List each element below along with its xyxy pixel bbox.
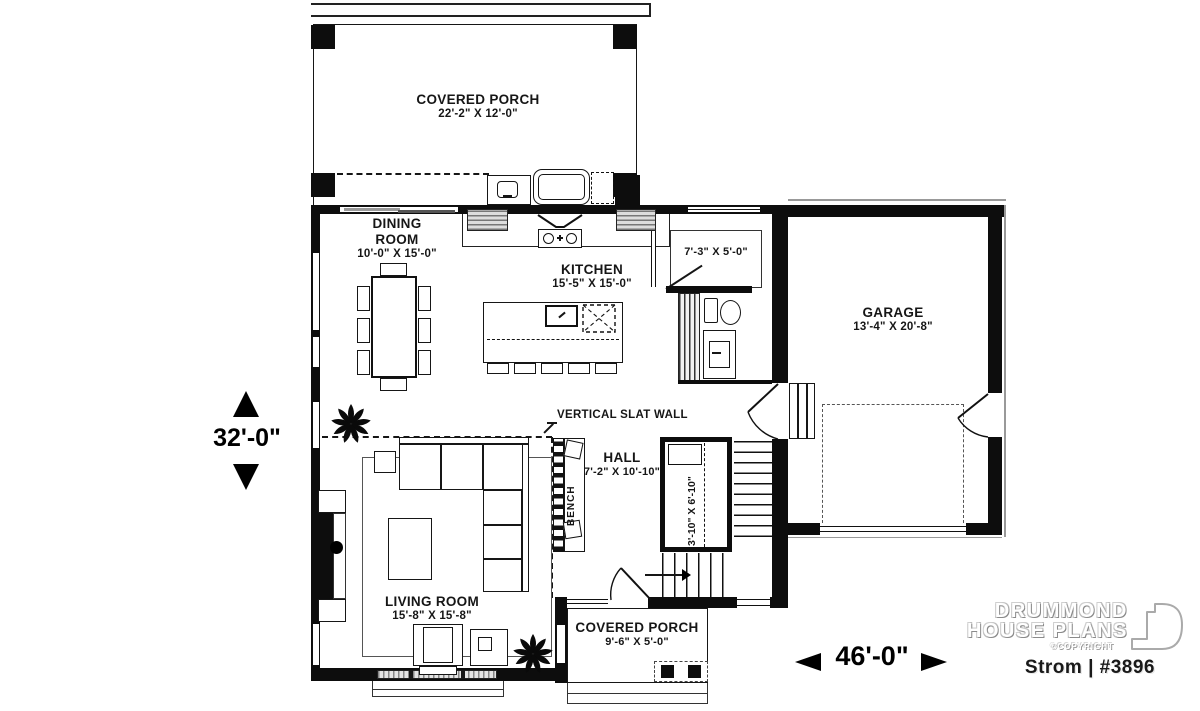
- sofa-back-right: [522, 444, 529, 592]
- garage-roof-edge: [788, 199, 1006, 201]
- garage-top-wall: [788, 205, 1006, 217]
- brand-line1: DRUMMOND: [930, 601, 1128, 621]
- brand-block: DRUMMOND HOUSE PLANS ©COPYRIGHT: [930, 601, 1128, 651]
- room-size: 10'-0" X 15'-0": [357, 248, 436, 262]
- toilet-tank: [704, 298, 718, 323]
- bath-sink: [709, 341, 730, 368]
- porch-post: [613, 25, 637, 49]
- porch-pier: [661, 665, 674, 678]
- dining-chair: [357, 318, 370, 343]
- dimension-height: 32'-0": [213, 424, 281, 453]
- toilet-bowl: [720, 300, 741, 325]
- hall-bottom-wall-corner: [770, 597, 788, 608]
- brand-line2: HOUSE PLANS: [930, 621, 1128, 641]
- left-window: [312, 402, 320, 448]
- kitchen-window-left: [467, 209, 508, 231]
- room-size: 13'-4" X 20'-8": [853, 321, 932, 335]
- room-name: HALL: [584, 450, 660, 466]
- room-name: KITCHEN: [552, 262, 631, 278]
- outdoor-fridge-dashed: [591, 172, 614, 204]
- room-label-garage: GARAGE 13'-4" X 20'-8": [853, 305, 932, 335]
- window-divider: [409, 670, 413, 679]
- room-size: 7'-3" X 5'-0": [684, 246, 748, 259]
- room-label-dining: DINING ROOM 10'-0" X 15'-0": [357, 216, 436, 262]
- outdoor-sink-drain: [503, 195, 512, 197]
- porch-post: [311, 25, 335, 49]
- hall-bottom-window: [737, 599, 770, 606]
- dining-chair: [380, 378, 407, 391]
- porch-front-step-line: [567, 693, 708, 694]
- left-window: [312, 624, 320, 665]
- kitchen-cabinet-edge: [651, 231, 656, 287]
- bench-label: BENCH: [566, 468, 577, 526]
- room-name: COVERED PORCH: [575, 620, 698, 636]
- living-steps-line: [372, 689, 504, 690]
- outdoor-corner-cabinet: [615, 175, 640, 205]
- room-label-living: LIVING ROOM 15'-8" X 15'-8": [385, 594, 479, 624]
- stairs-up: [734, 441, 772, 544]
- left-window: [312, 253, 320, 330]
- fireplace-firebox: [318, 513, 333, 599]
- dining-chair: [357, 286, 370, 311]
- porch-pier: [688, 665, 701, 678]
- sofa-seat-divider: [483, 524, 522, 526]
- garage-landing-steps: [789, 383, 815, 439]
- patio-door-panel: [398, 210, 455, 213]
- room-name: GARAGE: [853, 305, 932, 321]
- room-size: 15'-8" X 15'-8": [385, 610, 479, 624]
- landing-step-line: [797, 383, 799, 439]
- plant-icon: [512, 633, 554, 675]
- porch-front-top-edge: [567, 599, 608, 604]
- fireplace-cap: [318, 599, 346, 622]
- bath-top-wall: [666, 286, 752, 293]
- room-size: 22'-2" X 12'-0": [416, 108, 539, 122]
- stair-direction-arrow-icon: [682, 569, 691, 581]
- stairwell-size-label: 3'-10" X 6'-10": [686, 444, 698, 546]
- room-size: 15'-5" X 15'-0": [552, 278, 631, 292]
- lamp: [478, 637, 492, 651]
- mudroom-window-mullion: [688, 209, 760, 210]
- island-counter-dashed: [487, 339, 619, 340]
- dining-table: [371, 276, 417, 378]
- island-stool: [487, 363, 509, 374]
- driveway-edge: [788, 537, 1002, 538]
- island-stool: [541, 363, 563, 374]
- drummond-logo-icon: [1128, 599, 1186, 655]
- garage-door: [820, 526, 966, 532]
- porch-front-left-window: [556, 625, 566, 663]
- coffee-table: [388, 518, 432, 580]
- footstool: [419, 666, 457, 675]
- arrow-left-icon: [795, 653, 821, 671]
- island-stool: [595, 363, 617, 374]
- room-size: 9'-6" X 5'-0": [575, 636, 698, 649]
- bbq-grill-lid: [538, 174, 585, 200]
- fireplace-cap: [318, 490, 346, 513]
- dining-chair: [418, 318, 431, 343]
- burner: [566, 233, 577, 244]
- slat-wall-annotation: VERTICAL SLAT WALL: [557, 409, 688, 421]
- hall-bottom-wall: [648, 597, 737, 608]
- sofa-seats-right: [483, 490, 522, 592]
- slat-wall-leader: [543, 423, 553, 433]
- plant-icon: [330, 403, 372, 445]
- armchair-seat: [423, 627, 453, 663]
- sofa-seat-divider: [440, 444, 442, 490]
- garage-entry-door: [732, 382, 782, 442]
- fireplace-flue: [330, 541, 343, 554]
- garage-right-wall: [988, 205, 1002, 535]
- brand-copyright: ©COPYRIGHT: [930, 643, 1128, 651]
- patio-door-panel: [344, 208, 400, 211]
- kitchen-window-right: [616, 209, 656, 231]
- garage-side-door: [948, 392, 990, 440]
- bath-bottom-wall: [678, 380, 772, 384]
- room-label-porch-front: COVERED PORCH 9'-6" X 5'-0": [575, 620, 698, 649]
- dining-chair: [418, 286, 431, 311]
- room-label-hall: HALL 7'-2" X 10'-10": [584, 450, 660, 479]
- room-size: 7'-2" X 10'-10": [584, 466, 660, 479]
- cooktop-plus: [559, 235, 561, 241]
- sofa-back: [399, 437, 529, 444]
- left-window: [312, 337, 320, 367]
- room-label-mudroom: 7'-3" X 5'-0": [684, 246, 748, 259]
- bench-pillow: [563, 439, 583, 459]
- burner: [543, 233, 554, 244]
- room-name: DINING ROOM: [358, 216, 436, 248]
- island-stool: [514, 363, 536, 374]
- sofa-seat-divider: [483, 558, 522, 560]
- plan-id-label: Strom | #3896: [997, 657, 1155, 679]
- dining-chair: [380, 263, 407, 276]
- porch-roof-fascia: [311, 3, 651, 17]
- pantry-shelves: [678, 293, 700, 382]
- floor-plan: COVERED PORCH 22'-2" X 12'-0" GARAGE 13'…: [0, 0, 1200, 711]
- dining-chair: [418, 350, 431, 375]
- garage-car-space-dashed: [822, 404, 964, 523]
- arrow-right-icon: [921, 653, 947, 671]
- dining-chair: [357, 350, 370, 375]
- arrow-down-icon: [233, 464, 259, 490]
- dimension-width: 46'-0": [835, 641, 908, 672]
- garage-side-door-opening: [988, 393, 1002, 437]
- fireplace-surround: [333, 513, 346, 599]
- island-dishwasher-dashed: [582, 304, 616, 333]
- room-name: LIVING ROOM: [385, 594, 479, 610]
- arrow-up-icon: [233, 391, 259, 417]
- room-label-porch-top: COVERED PORCH 22'-2" X 12'-0": [416, 92, 539, 122]
- landing-step-line: [806, 383, 808, 439]
- porch-roof-edge-dashed: [337, 173, 489, 175]
- window-divider: [461, 670, 465, 679]
- entry-door: [605, 556, 653, 602]
- bath-faucet: [712, 352, 721, 354]
- vertical-slat-wall: [553, 438, 564, 552]
- porch-post: [311, 173, 335, 197]
- island-stool: [568, 363, 590, 374]
- room-name: COVERED PORCH: [416, 92, 539, 108]
- closet-dashed-line: [704, 443, 705, 547]
- room-label-kitchen: KITCHEN 15'-5" X 15'-0": [552, 262, 631, 292]
- garage-roof-edge-right: [1004, 205, 1006, 537]
- side-table: [374, 451, 396, 473]
